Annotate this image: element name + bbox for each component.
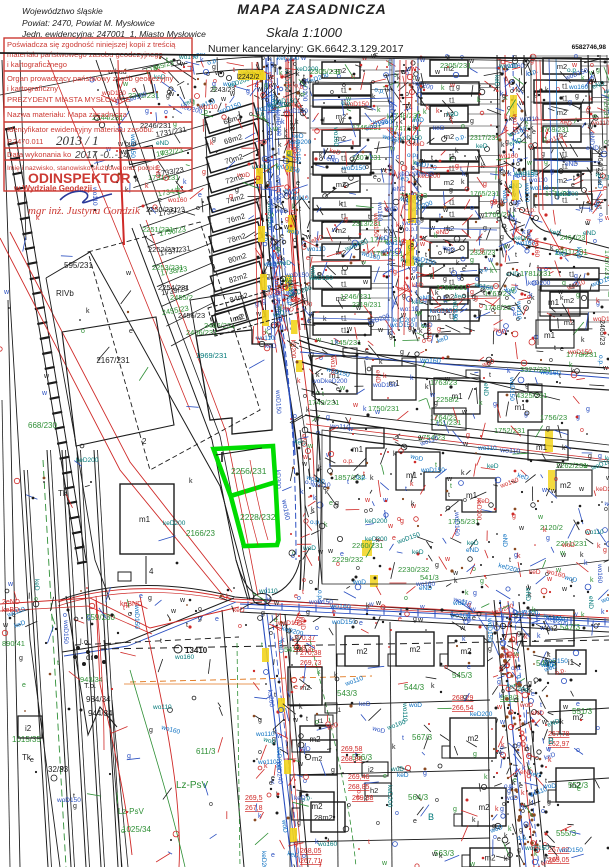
svg-text:g: g xyxy=(488,646,492,653)
svg-text:k: k xyxy=(560,295,564,302)
svg-text:keD: keD xyxy=(575,247,582,259)
svg-text:e: e xyxy=(359,620,363,627)
svg-text:g: g xyxy=(435,562,439,569)
svg-text:keD200: keD200 xyxy=(163,520,186,527)
svg-text:o.p.: o.p. xyxy=(452,309,459,320)
svg-text:wo110: wo110 xyxy=(306,246,326,253)
svg-text:w: w xyxy=(518,525,525,532)
svg-text:1025/34: 1025/34 xyxy=(122,825,151,834)
svg-text:2167/231: 2167/231 xyxy=(96,356,130,365)
svg-text:m1: m1 xyxy=(139,515,151,524)
svg-text:2252/231: 2252/231 xyxy=(148,245,179,254)
svg-text:Organ prowadzący państwowy zas: Organ prowadzący państwowy zasób geodezy… xyxy=(7,74,174,83)
svg-text:o: o xyxy=(210,97,214,104)
svg-text:o: o xyxy=(121,828,125,835)
svg-text:k: k xyxy=(425,384,429,391)
svg-text:269,73: 269,73 xyxy=(300,660,322,667)
svg-text:w: w xyxy=(434,69,441,76)
svg-text:woD: woD xyxy=(408,702,422,709)
svg-text:g: g xyxy=(586,406,590,413)
svg-text:e: e xyxy=(280,233,284,240)
svg-text:g: g xyxy=(500,234,504,241)
svg-text:984/34: 984/34 xyxy=(86,695,111,704)
svg-text:g: g xyxy=(480,578,484,585)
svg-text:o: o xyxy=(196,205,200,212)
svg-text:o: o xyxy=(164,109,168,116)
svg-text:551/3: 551/3 xyxy=(572,707,593,716)
svg-text:k: k xyxy=(517,553,521,560)
svg-text:m1: m1 xyxy=(544,331,556,340)
svg-text:g: g xyxy=(202,169,206,176)
svg-text:o: o xyxy=(541,808,545,815)
svg-text:t1: t1 xyxy=(341,282,347,289)
svg-text:woD: woD xyxy=(277,260,291,267)
svg-text:2: 2 xyxy=(142,437,147,446)
svg-text:w: w xyxy=(431,851,438,858)
svg-text:o: o xyxy=(128,611,132,618)
svg-text:g: g xyxy=(19,655,23,662)
svg-text:o: o xyxy=(505,295,509,302)
svg-text:o: o xyxy=(81,328,85,335)
svg-text:keD200: keD200 xyxy=(418,173,441,180)
svg-text:Lz-PsV: Lz-PsV xyxy=(176,780,209,791)
svg-text:w: w xyxy=(512,772,519,779)
svg-text:k: k xyxy=(276,165,280,172)
svg-text:o: o xyxy=(132,87,136,94)
svg-text:woD150: woD150 xyxy=(508,376,515,401)
svg-text:k: k xyxy=(477,97,481,104)
svg-text:k: k xyxy=(465,590,469,597)
svg-text:o: o xyxy=(470,205,474,212)
svg-text:eND: eND xyxy=(466,547,479,554)
svg-text:t1: t1 xyxy=(562,84,568,91)
svg-text:t: t xyxy=(302,589,304,596)
svg-text:eND: eND xyxy=(393,186,406,193)
svg-text:2017 -0..-14: 2017 -0..-14 xyxy=(74,150,129,161)
svg-text:k: k xyxy=(507,368,511,375)
svg-text:k: k xyxy=(377,107,381,114)
svg-text:woD150: woD150 xyxy=(420,467,445,474)
svg-text:g: g xyxy=(525,382,529,389)
svg-text:o: o xyxy=(422,338,426,345)
svg-text:k: k xyxy=(410,375,414,382)
svg-text:keD: keD xyxy=(413,141,425,148)
svg-text:k: k xyxy=(317,669,321,676)
svg-text:595/231: 595/231 xyxy=(64,261,93,270)
svg-text:g: g xyxy=(294,840,298,847)
svg-text:woD: woD xyxy=(274,208,288,215)
svg-text:w: w xyxy=(381,860,388,867)
svg-text:k: k xyxy=(501,742,505,749)
svg-text:w: w xyxy=(364,497,371,504)
svg-text:1246/231: 1246/231 xyxy=(340,292,371,301)
svg-text:g: g xyxy=(546,425,550,432)
svg-text:eND: eND xyxy=(524,588,531,601)
svg-text:k: k xyxy=(545,87,549,94)
svg-text:g: g xyxy=(550,168,554,175)
svg-text:e: e xyxy=(519,783,523,790)
svg-text:269,5: 269,5 xyxy=(245,795,263,802)
svg-text:g: g xyxy=(285,216,289,223)
svg-text:woD150: woD150 xyxy=(567,349,592,356)
svg-text:w: w xyxy=(297,761,304,768)
svg-text:wo110: wo110 xyxy=(498,63,518,70)
svg-text:w: w xyxy=(462,441,469,448)
svg-text:woD150: woD150 xyxy=(274,389,282,414)
svg-text:k: k xyxy=(548,757,552,764)
svg-text:o: o xyxy=(590,62,594,69)
svg-text:o: o xyxy=(444,664,448,671)
svg-text:943/34: 943/34 xyxy=(80,675,103,684)
svg-text:woD150: woD150 xyxy=(133,604,140,629)
svg-text:w: w xyxy=(446,476,453,483)
svg-text:w: w xyxy=(220,96,227,103)
svg-text:k: k xyxy=(504,227,508,234)
svg-text:g: g xyxy=(149,727,153,734)
svg-text:m2: m2 xyxy=(444,132,454,141)
svg-text:k: k xyxy=(534,851,538,858)
svg-text:e: e xyxy=(139,593,143,600)
svg-text:o: o xyxy=(293,237,297,244)
svg-text:k: k xyxy=(479,400,483,407)
svg-text:k: k xyxy=(297,378,301,385)
svg-text:e: e xyxy=(531,691,535,698)
svg-text:1780/231: 1780/231 xyxy=(436,283,467,292)
svg-text:keD200: keD200 xyxy=(289,139,312,146)
svg-text:k: k xyxy=(383,373,387,380)
svg-text:w: w xyxy=(7,581,14,588)
svg-text:g: g xyxy=(534,91,538,98)
svg-text:w: w xyxy=(557,289,564,296)
svg-text:k: k xyxy=(504,126,508,133)
svg-text:g: g xyxy=(546,535,550,542)
svg-text:keD200: keD200 xyxy=(596,486,609,493)
svg-text:g: g xyxy=(306,609,310,616)
svg-text:w: w xyxy=(327,548,334,555)
svg-text:g: g xyxy=(457,274,461,281)
svg-text:keD: keD xyxy=(478,498,490,505)
svg-text:w: w xyxy=(582,463,589,470)
svg-text:eND: eND xyxy=(482,383,489,396)
svg-text:wo110: wo110 xyxy=(152,704,172,711)
svg-text:woD150: woD150 xyxy=(372,212,379,237)
svg-text:267,8: 267,8 xyxy=(245,805,263,812)
svg-text:t: t xyxy=(573,175,575,182)
svg-text:e: e xyxy=(215,616,219,623)
svg-text:woD150: woD150 xyxy=(558,847,583,854)
svg-text:w: w xyxy=(347,426,354,433)
svg-text:g: g xyxy=(145,108,149,115)
svg-text:e: e xyxy=(571,182,575,189)
svg-text:keD: keD xyxy=(487,463,499,470)
svg-text:2228/232: 2228/232 xyxy=(240,512,276,522)
svg-text:t: t xyxy=(295,215,297,222)
svg-text:Powiat: 2470, Powiat M. Mysłow: Powiat: 2470, Powiat M. Mysłowice xyxy=(22,18,155,28)
svg-text:w: w xyxy=(550,488,557,495)
svg-text:g: g xyxy=(455,163,459,170)
svg-text:k: k xyxy=(281,119,285,126)
svg-text:o: o xyxy=(580,427,584,434)
svg-text:o: o xyxy=(302,853,306,860)
svg-text:keD: keD xyxy=(233,607,245,614)
svg-text:g: g xyxy=(603,547,607,554)
svg-text:e: e xyxy=(472,615,476,622)
svg-text:w: w xyxy=(449,82,456,89)
svg-text:k: k xyxy=(393,451,397,458)
svg-text:k: k xyxy=(306,407,310,414)
svg-text:e: e xyxy=(365,355,369,362)
svg-text:o: o xyxy=(336,561,340,568)
svg-text:o: o xyxy=(395,810,399,817)
svg-text:w: w xyxy=(273,600,280,607)
svg-text:g: g xyxy=(270,61,274,68)
svg-text:keD: keD xyxy=(299,746,311,753)
svg-text:Tk: Tk xyxy=(58,489,68,498)
svg-text:2254/231: 2254/231 xyxy=(158,283,189,292)
svg-text:t: t xyxy=(233,67,235,74)
svg-text:o: o xyxy=(302,577,306,584)
svg-text:k: k xyxy=(426,105,430,112)
svg-text:k: k xyxy=(430,274,434,281)
svg-text:k: k xyxy=(462,171,466,178)
svg-text:w: w xyxy=(559,550,566,557)
svg-text:g: g xyxy=(235,187,239,194)
svg-text:woD150: woD150 xyxy=(543,658,568,665)
svg-text:woD150: woD150 xyxy=(308,599,333,606)
svg-text:w: w xyxy=(272,126,279,133)
svg-text:keD: keD xyxy=(359,701,371,708)
svg-text:keD200: keD200 xyxy=(556,191,579,198)
svg-text:wo160: wo160 xyxy=(317,841,338,848)
svg-text:Poświadcza się zgodność niniej: Poświadcza się zgodność niniejszej kopii… xyxy=(7,40,176,49)
svg-text:k: k xyxy=(454,578,458,585)
svg-text:k: k xyxy=(543,527,547,534)
svg-text:t: t xyxy=(405,486,407,493)
svg-text:545/3: 545/3 xyxy=(452,671,473,680)
svg-text:32/33: 32/33 xyxy=(48,765,69,774)
svg-text:1769/231: 1769/231 xyxy=(540,127,569,134)
svg-text:k: k xyxy=(189,478,193,485)
svg-text:t: t xyxy=(515,252,517,259)
svg-text:m2: m2 xyxy=(460,647,472,656)
svg-text:k: k xyxy=(431,683,435,690)
svg-text:woD150: woD150 xyxy=(372,382,397,389)
svg-text:w: w xyxy=(419,241,426,248)
svg-text:m2: m2 xyxy=(484,854,496,863)
svg-text:keD: keD xyxy=(467,540,479,547)
svg-text:k: k xyxy=(550,245,554,252)
svg-text:o: o xyxy=(593,113,597,120)
svg-text:k: k xyxy=(461,179,465,186)
svg-text:k: k xyxy=(598,180,602,187)
svg-text:k: k xyxy=(423,109,427,116)
svg-text:668/230: 668/230 xyxy=(28,421,57,430)
svg-text:w: w xyxy=(503,169,510,176)
svg-text:4325/231: 4325/231 xyxy=(516,391,547,400)
svg-text:g: g xyxy=(229,193,233,200)
svg-text:k: k xyxy=(300,489,304,496)
svg-text:o: o xyxy=(303,393,307,400)
svg-text:k: k xyxy=(484,774,488,781)
svg-text:w: w xyxy=(253,198,260,205)
svg-text:t: t xyxy=(286,624,288,631)
svg-text:567/3: 567/3 xyxy=(412,733,433,742)
svg-text:k: k xyxy=(527,134,531,141)
svg-text:o: o xyxy=(511,306,515,313)
svg-text:g: g xyxy=(499,665,503,672)
svg-text:keD200: keD200 xyxy=(260,851,267,867)
svg-text:g: g xyxy=(480,247,484,254)
svg-text:o: o xyxy=(438,250,442,257)
svg-text:m2: m2 xyxy=(478,803,490,812)
svg-text:890/41: 890/41 xyxy=(2,639,25,648)
svg-text:w: w xyxy=(179,597,186,604)
svg-text:i kartograficznego: i kartograficznego xyxy=(7,60,67,69)
svg-text:w: w xyxy=(556,463,563,470)
svg-text:o: o xyxy=(376,820,380,827)
svg-text:268,86: 268,86 xyxy=(341,756,363,763)
svg-text:w: w xyxy=(429,392,436,399)
svg-text:g: g xyxy=(413,616,417,623)
svg-text:k: k xyxy=(529,800,533,807)
svg-text:k: k xyxy=(532,607,536,614)
svg-text:o: o xyxy=(461,123,465,130)
svg-text:1015/35: 1015/35 xyxy=(12,735,41,744)
svg-text:k: k xyxy=(455,148,459,155)
svg-text:k: k xyxy=(183,179,187,186)
svg-text:o: o xyxy=(435,797,439,804)
svg-text:o.p.: o.p. xyxy=(356,474,367,481)
svg-text:e: e xyxy=(271,852,275,859)
svg-text:g: g xyxy=(519,827,523,834)
svg-text:2243/23: 2243/23 xyxy=(210,87,235,94)
svg-text:Województwo śląskie: Województwo śląskie xyxy=(22,6,103,16)
svg-text:woD150: woD150 xyxy=(592,316,609,323)
svg-text:k: k xyxy=(490,268,494,275)
svg-text:t: t xyxy=(512,147,514,154)
svg-text:k: k xyxy=(363,406,367,413)
svg-text:1755/231: 1755/231 xyxy=(448,517,479,526)
svg-text:2305/231: 2305/231 xyxy=(440,61,471,70)
svg-text:w: w xyxy=(417,617,424,624)
svg-text:m2: m2 xyxy=(564,318,574,327)
svg-text:keD: keD xyxy=(412,282,424,289)
svg-text:w: w xyxy=(487,257,494,264)
svg-text:w: w xyxy=(2,622,9,629)
svg-text:wo110: wo110 xyxy=(257,759,277,766)
svg-text:2258/2: 2258/2 xyxy=(436,395,459,404)
svg-text:o: o xyxy=(209,801,213,808)
svg-text:wo160: wo160 xyxy=(568,84,589,91)
svg-text:o.p.: o.p. xyxy=(594,200,601,211)
svg-text:w: w xyxy=(43,373,50,380)
svg-text:2166/23: 2166/23 xyxy=(186,529,215,538)
svg-text:wo110: wo110 xyxy=(519,116,539,123)
svg-text:k: k xyxy=(372,94,376,101)
svg-text:o.p.: o.p. xyxy=(511,665,522,672)
svg-text:w: w xyxy=(604,215,609,222)
svg-text:P.2470.011: P.2470.011 xyxy=(7,137,43,146)
svg-text:w: w xyxy=(159,150,166,157)
svg-text:k: k xyxy=(601,609,605,616)
svg-text:e: e xyxy=(392,535,396,542)
svg-text:2251/231: 2251/231 xyxy=(142,225,173,234)
svg-text:wo160: wo160 xyxy=(167,197,188,204)
svg-text:28m2: 28m2 xyxy=(314,813,333,822)
svg-text:k: k xyxy=(569,362,573,369)
svg-text:o: o xyxy=(297,595,301,602)
svg-text:t: t xyxy=(439,213,441,220)
svg-text:woD: woD xyxy=(277,639,284,653)
svg-text:g: g xyxy=(511,286,515,293)
svg-text:w: w xyxy=(377,327,384,334)
svg-text:w: w xyxy=(125,270,132,277)
svg-text:k: k xyxy=(384,228,388,235)
svg-text:e: e xyxy=(212,207,216,214)
svg-text:wo110: wo110 xyxy=(477,445,497,452)
svg-text:k: k xyxy=(590,577,594,584)
svg-text:t: t xyxy=(299,206,301,213)
svg-text:keD: keD xyxy=(493,75,500,87)
svg-text:woD: woD xyxy=(561,542,575,549)
svg-text:t: t xyxy=(306,716,308,723)
svg-text:w: w xyxy=(355,305,362,312)
svg-text:4: 4 xyxy=(149,567,154,576)
svg-text:k: k xyxy=(413,125,417,132)
svg-text:t1: t1 xyxy=(562,198,568,205)
svg-text:k: k xyxy=(323,316,327,323)
svg-text:keD: keD xyxy=(294,795,306,802)
svg-text:o: o xyxy=(501,688,505,695)
svg-text:k: k xyxy=(411,501,415,508)
svg-text:k: k xyxy=(462,636,466,643)
svg-text:m1: m1 xyxy=(352,445,364,454)
svg-text:g: g xyxy=(470,118,474,125)
svg-text:w: w xyxy=(605,475,609,482)
svg-text:2253/231: 2253/231 xyxy=(152,263,183,272)
svg-text:o.p.: o.p. xyxy=(355,790,362,801)
svg-text:k: k xyxy=(288,82,292,89)
svg-text:eND: eND xyxy=(586,145,599,152)
svg-text:k: k xyxy=(513,207,517,214)
svg-text:o: o xyxy=(238,623,242,630)
svg-text:g: g xyxy=(443,276,447,283)
svg-text:woD150: woD150 xyxy=(453,511,460,536)
svg-text:t: t xyxy=(559,373,561,380)
svg-text:woD: woD xyxy=(352,579,366,586)
svg-text:woD150: woD150 xyxy=(254,106,279,113)
svg-text:mgr inż. Justyna Gondzik: mgr inż. Justyna Gondzik xyxy=(28,205,141,217)
svg-text:k: k xyxy=(364,796,368,803)
svg-text:563/3: 563/3 xyxy=(434,849,455,858)
svg-text:m2: m2 xyxy=(560,481,572,490)
svg-text:t: t xyxy=(305,753,307,760)
svg-text:i2: i2 xyxy=(368,765,374,774)
svg-text:t: t xyxy=(450,483,452,490)
svg-text:1765/231: 1765/231 xyxy=(470,191,499,198)
svg-text:k: k xyxy=(392,744,396,751)
svg-text:k: k xyxy=(419,328,423,335)
svg-text:g: g xyxy=(434,400,438,407)
svg-text:t: t xyxy=(123,605,125,612)
svg-text:k: k xyxy=(436,108,440,115)
svg-text:o: o xyxy=(596,725,600,732)
svg-text:g: g xyxy=(517,741,521,748)
svg-text:g: g xyxy=(212,136,216,143)
svg-text:e: e xyxy=(576,701,580,708)
svg-text:keD200: keD200 xyxy=(296,66,319,73)
svg-text:Lz-PsV: Lz-PsV xyxy=(118,807,144,816)
